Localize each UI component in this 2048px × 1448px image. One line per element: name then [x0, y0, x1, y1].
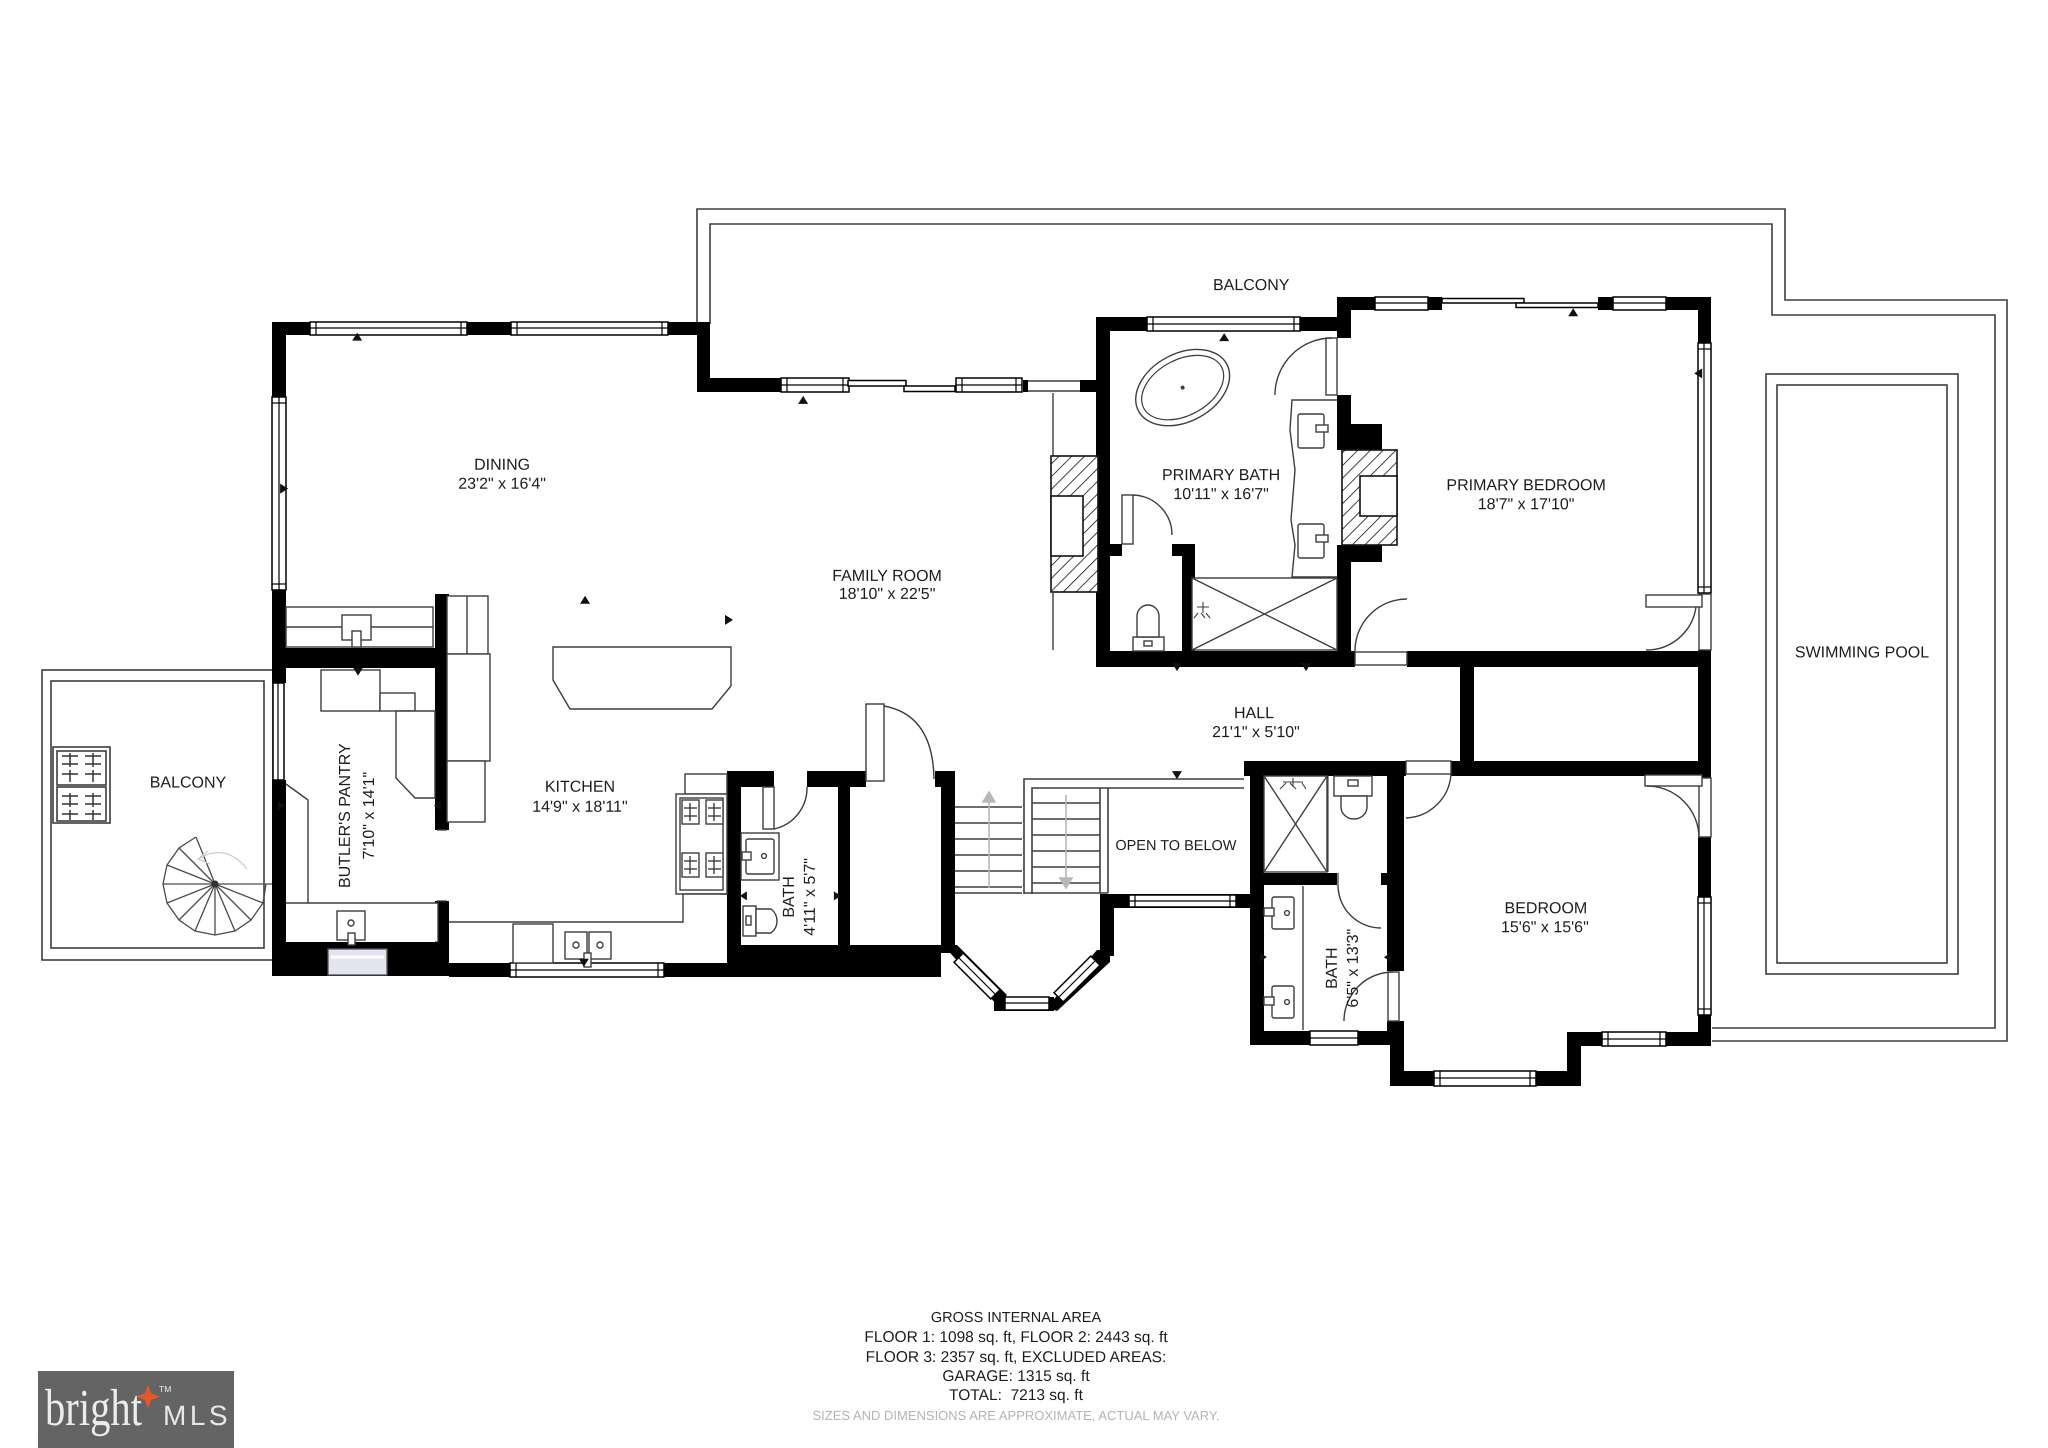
svg-text:KITCHEN: KITCHEN	[545, 779, 615, 796]
svg-text:OPEN TO BELOW: OPEN TO BELOW	[1115, 838, 1236, 854]
svg-text:TM: TM	[159, 1384, 171, 1394]
svg-text:bright: bright	[45, 1380, 142, 1437]
svg-text:BATH: BATH	[781, 876, 798, 917]
svg-text:21'1" x 5'10": 21'1" x 5'10"	[1212, 724, 1300, 741]
svg-text:PRIMARY BATH: PRIMARY BATH	[1162, 467, 1280, 484]
svg-text:FLOOR 1: 1098 sq. ft, FLOOR 2:: FLOOR 1: 1098 sq. ft, FLOOR 2: 2443 sq. …	[864, 1329, 1168, 1346]
svg-text:GROSS INTERNAL AREA: GROSS INTERNAL AREA	[931, 1310, 1102, 1326]
svg-text:TOTAL: 7213 sq. ft: TOTAL: 7213 sq. ft	[949, 1387, 1084, 1404]
svg-text:BALCONY: BALCONY	[1213, 277, 1290, 294]
svg-text:6'5" x 13'3": 6'5" x 13'3"	[1345, 929, 1362, 1008]
svg-text:18'10" x 22'5": 18'10" x 22'5"	[839, 586, 936, 603]
svg-text:15'6" x 15'6": 15'6" x 15'6"	[1501, 919, 1589, 936]
svg-text:GARAGE: 1315 sq. ft: GARAGE: 1315 sq. ft	[942, 1368, 1090, 1385]
svg-text:4'11" x 5'7": 4'11" x 5'7"	[802, 858, 819, 936]
svg-text:BATH: BATH	[1324, 947, 1341, 988]
svg-text:7'10" x 14'1": 7'10" x 14'1"	[361, 772, 378, 860]
svg-text:BUTLER'S PANTRY: BUTLER'S PANTRY	[337, 743, 354, 888]
svg-text:DINING: DINING	[474, 457, 530, 474]
svg-text:PRIMARY BEDROOM: PRIMARY BEDROOM	[1446, 477, 1605, 494]
svg-text:SIZES AND DIMENSIONS ARE APPRO: SIZES AND DIMENSIONS ARE APPROXIMATE, AC…	[812, 1408, 1219, 1423]
svg-text:BEDROOM: BEDROOM	[1505, 900, 1588, 917]
svg-text:BALCONY: BALCONY	[150, 775, 227, 792]
svg-text:FAMILY ROOM: FAMILY ROOM	[832, 568, 942, 585]
svg-text:10'11" x 16'7": 10'11" x 16'7"	[1173, 486, 1268, 503]
svg-text:SWIMMING POOL: SWIMMING POOL	[1795, 644, 1929, 661]
svg-text:HALL: HALL	[1234, 705, 1274, 722]
svg-text:MLS: MLS	[163, 1400, 231, 1431]
svg-text:18'7" x 17'10": 18'7" x 17'10"	[1478, 496, 1575, 513]
svg-text:23'2" x 16'4": 23'2" x 16'4"	[458, 476, 546, 493]
svg-text:14'9" x 18'11": 14'9" x 18'11"	[532, 799, 627, 816]
svg-text:FLOOR 3: 2357 sq. ft, EXCLUDED: FLOOR 3: 2357 sq. ft, EXCLUDED AREAS:	[866, 1349, 1167, 1366]
